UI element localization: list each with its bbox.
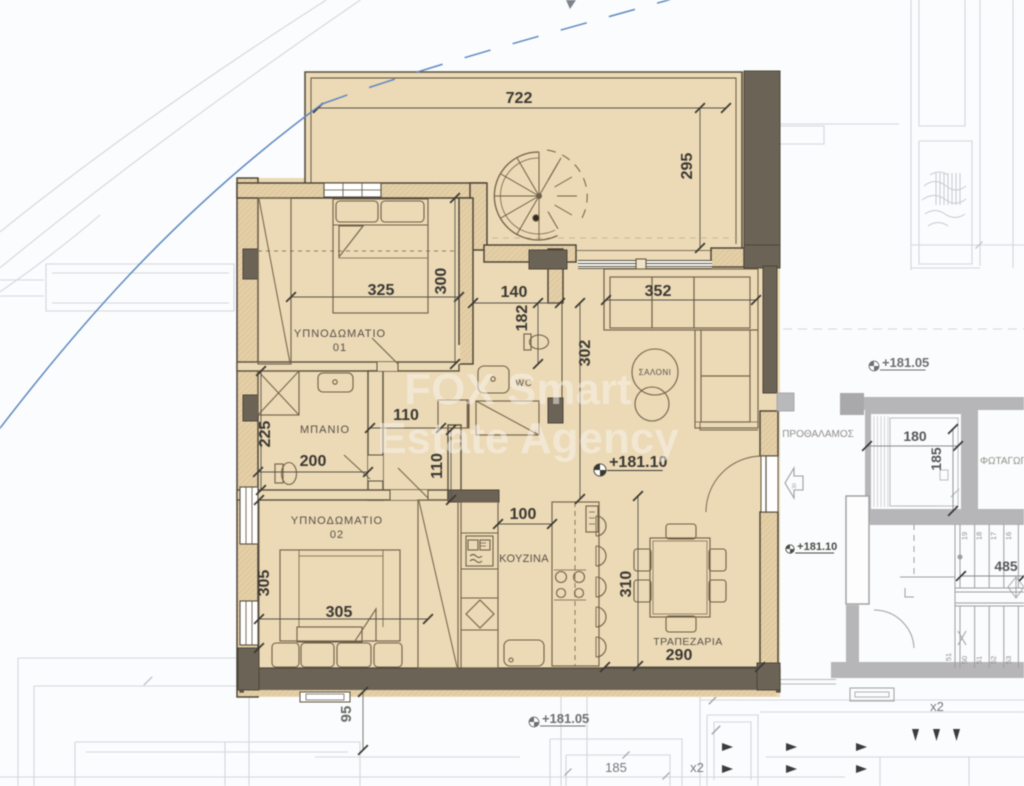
svg-text:x2: x2 xyxy=(930,699,944,714)
svg-text:51: 51 xyxy=(975,656,984,664)
svg-text:01: 01 xyxy=(333,342,347,354)
svg-text:140: 140 xyxy=(501,284,528,301)
svg-text:ΜΠΑΝΙΟ: ΜΠΑΝΙΟ xyxy=(300,424,350,436)
svg-text:ΦΩΤΑΓΩΓΟΣ: ΦΩΤΑΓΩΓΟΣ xyxy=(980,456,1024,467)
svg-text:30: 30 xyxy=(792,483,798,489)
svg-text:185: 185 xyxy=(605,760,627,775)
svg-text:200: 200 xyxy=(300,453,327,470)
svg-text:+181.05: +181.05 xyxy=(542,711,589,726)
svg-text:722: 722 xyxy=(506,90,533,107)
svg-text:100: 100 xyxy=(510,506,537,523)
svg-text:17: 17 xyxy=(989,532,998,540)
svg-text:Estate Agency: Estate Agency xyxy=(377,414,679,463)
svg-text:302: 302 xyxy=(577,340,594,367)
svg-text:53: 53 xyxy=(1004,656,1013,664)
svg-text:325: 325 xyxy=(368,282,395,299)
svg-text:ΠΡΟΘΑΛΑΜΟΣ: ΠΡΟΘΑΛΑΜΟΣ xyxy=(782,429,854,440)
svg-text:185: 185 xyxy=(928,447,944,471)
svg-text:16: 16 xyxy=(1004,532,1013,540)
svg-text:02: 02 xyxy=(330,529,344,541)
svg-text:ΥΠΝΟΔΩΜΑΤΙΟ: ΥΠΝΟΔΩΜΑΤΙΟ xyxy=(294,328,386,340)
svg-text:180: 180 xyxy=(903,428,927,444)
svg-text:295: 295 xyxy=(679,153,696,180)
svg-text:290: 290 xyxy=(666,647,693,664)
svg-text:+181.05: +181.05 xyxy=(882,355,929,370)
svg-text:ΤΡΑΠΕΖΑΡΙΑ: ΤΡΑΠΕΖΑΡΙΑ xyxy=(653,636,723,648)
svg-text:+181.10: +181.10 xyxy=(797,541,837,553)
svg-text:x2: x2 xyxy=(690,760,704,775)
svg-text:18: 18 xyxy=(975,532,984,540)
svg-text:310: 310 xyxy=(618,571,635,598)
svg-text:ΣΑΛΟΝΙ: ΣΑΛΟΝΙ xyxy=(639,368,672,377)
svg-text:ΥΠΝΟΔΩΜΑΤΙΟ: ΥΠΝΟΔΩΜΑΤΙΟ xyxy=(291,515,383,527)
svg-text:50: 50 xyxy=(960,656,969,664)
svg-text:352: 352 xyxy=(645,283,672,300)
svg-text:ΚΟΥΖΙΝΑ: ΚΟΥΖΙΝΑ xyxy=(499,553,549,565)
svg-text:182: 182 xyxy=(514,305,531,332)
svg-text:19: 19 xyxy=(960,532,969,540)
svg-text:300: 300 xyxy=(433,268,450,295)
svg-text:FOX Smart: FOX Smart xyxy=(404,365,632,414)
svg-text:485: 485 xyxy=(994,558,1018,574)
svg-text:305: 305 xyxy=(256,570,273,597)
svg-text:51: 51 xyxy=(944,653,953,661)
svg-text:225: 225 xyxy=(257,421,274,448)
svg-text:305: 305 xyxy=(326,604,353,621)
svg-text:95: 95 xyxy=(338,706,355,723)
svg-text:52: 52 xyxy=(989,656,998,664)
